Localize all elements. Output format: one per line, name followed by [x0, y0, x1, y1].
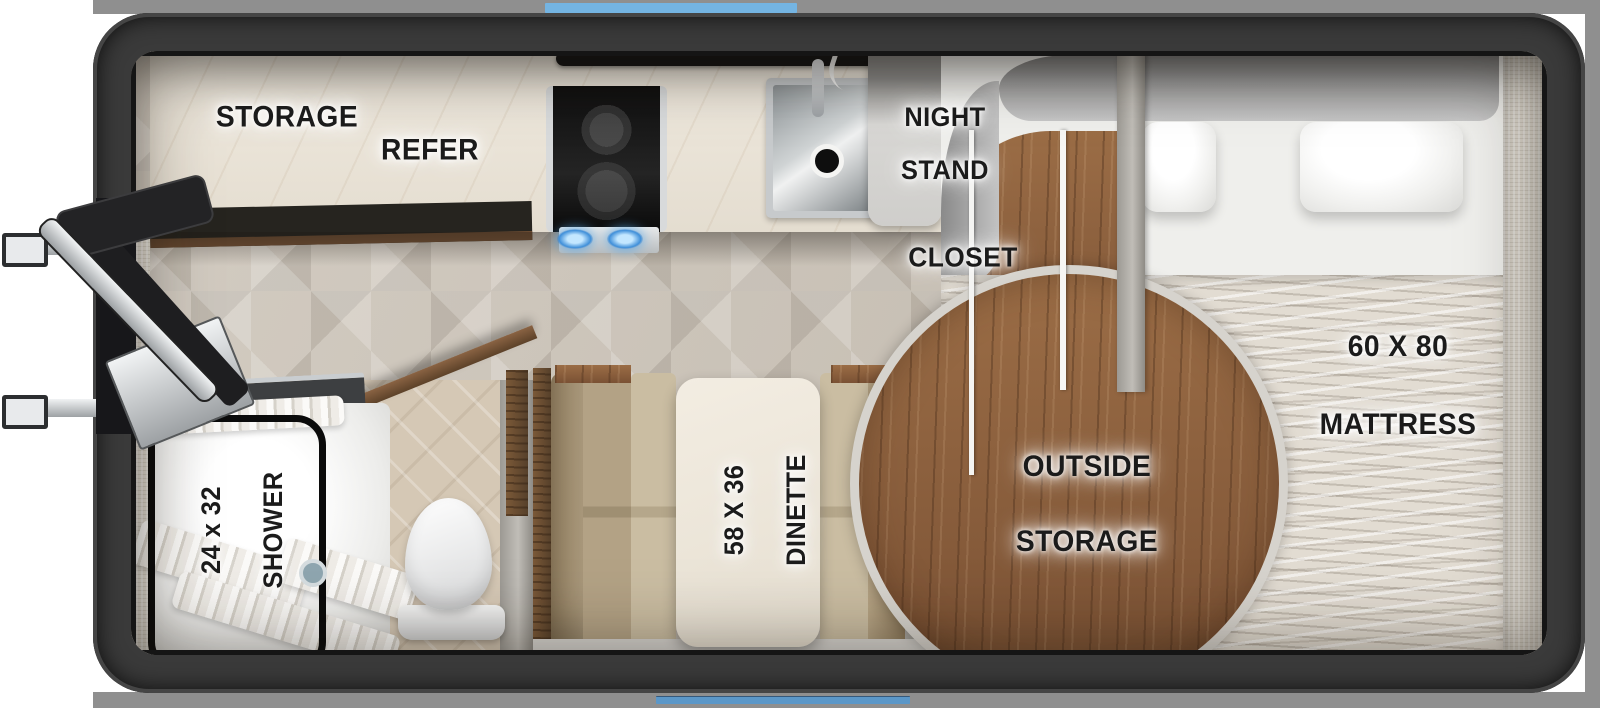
shower-drain	[299, 559, 327, 587]
headboard-band	[999, 55, 1499, 121]
cooktop-range	[546, 86, 667, 232]
label-outside-storage-line1: OUTSIDE	[1023, 450, 1152, 483]
faucet-icon	[812, 59, 824, 117]
label-outside-storage-line2: STORAGE	[1016, 525, 1158, 558]
label-mattress: 60 X 80 MATTRESS	[1320, 288, 1477, 444]
bottom-accent-bar	[656, 696, 910, 704]
dinette-bench-frame	[533, 368, 551, 655]
label-night-stand-line1: NIGHT	[904, 103, 985, 133]
roof-accent-bar	[545, 3, 797, 13]
label-storage: STORAGE	[216, 102, 358, 131]
burner-flame-icon	[557, 229, 593, 249]
label-shower-line2: SHOWER	[258, 471, 288, 588]
bedroom-side-wall	[1503, 51, 1547, 655]
label-night-stand: NIGHT STAND	[901, 78, 989, 184]
outer-band-right	[1585, 0, 1600, 708]
label-refer: REFER	[381, 135, 479, 164]
label-dinette: 58 X 36 DINETTE	[688, 454, 812, 566]
outer-band-top	[93, 0, 1600, 14]
label-outside-storage: OUTSIDE STORAGE	[1016, 410, 1158, 560]
label-shower: 24 x 32 SHOWER	[165, 471, 289, 588]
under-counter-shadow	[150, 232, 941, 266]
burner-flame-icon	[607, 229, 643, 249]
dinette-bench-cushion	[583, 373, 631, 651]
bed-pillow	[1142, 122, 1216, 212]
bathroom-wall	[506, 370, 528, 516]
label-mattress-line2: MATTRESS	[1320, 408, 1477, 441]
bench-top-trim	[555, 365, 631, 383]
step-rail-bracket	[2, 395, 48, 429]
label-closet: CLOSET	[908, 243, 1018, 270]
label-shower-line1: 24 x 32	[196, 486, 226, 574]
sink-drain	[810, 144, 844, 178]
dinette-bench-seat	[631, 373, 676, 651]
floorplan-canvas: STORAGE REFER NIGHT STAND CLOSET 60 X 80…	[0, 0, 1600, 708]
dinette-bench-back	[551, 373, 583, 651]
toilet-base	[398, 605, 505, 640]
bed-pillow	[1300, 122, 1463, 212]
label-dinette-line2: DINETTE	[781, 454, 811, 566]
label-night-stand-line2: STAND	[901, 155, 989, 185]
closet-rod	[1060, 130, 1066, 390]
closet-wall	[1117, 51, 1145, 392]
label-dinette-line1: 58 X 36	[719, 465, 749, 556]
label-mattress-line1: 60 X 80	[1348, 330, 1449, 363]
